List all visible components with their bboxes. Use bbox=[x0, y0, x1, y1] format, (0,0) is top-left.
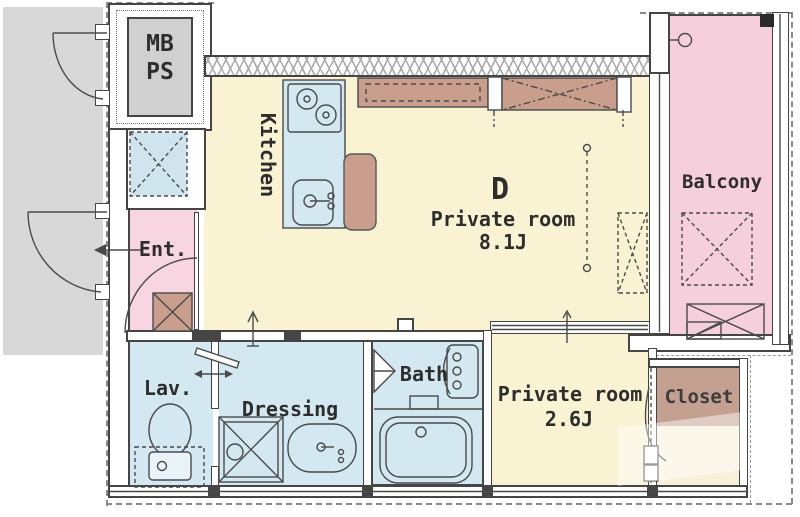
neighbor-door-icon bbox=[28, 33, 107, 292]
label-closet: Closet bbox=[650, 387, 748, 408]
utility-space-icon bbox=[130, 132, 187, 196]
watermark bbox=[618, 412, 742, 486]
shoe-cabinet-icon bbox=[153, 293, 192, 331]
bathtub-icon bbox=[374, 396, 483, 483]
sliding-door-mark bbox=[563, 311, 571, 343]
overhead-cabinet-icon bbox=[358, 77, 631, 127]
floor-plan: MB PS Kitchen D Private room 8.1J Balcon… bbox=[0, 0, 800, 517]
label-mbps: MB PS bbox=[127, 30, 193, 86]
toilet-icon bbox=[135, 404, 204, 487]
fixtures-overlay bbox=[0, 0, 800, 517]
label-kitchen: Kitchen bbox=[255, 105, 279, 205]
label-balcony: Balcony bbox=[672, 172, 772, 193]
label-dressing: Dressing bbox=[215, 398, 365, 420]
label-bedroom-name: Private room bbox=[477, 383, 663, 405]
refrigerator-icon bbox=[344, 154, 376, 230]
balcony-partition-icon bbox=[687, 304, 764, 339]
label-main-room-letter: D bbox=[470, 173, 530, 206]
balcony-faucet-icon bbox=[670, 34, 692, 47]
label-bath: Bath bbox=[374, 363, 474, 385]
kitchen-counter-icon bbox=[283, 80, 345, 228]
lavatory-door-leaf bbox=[194, 348, 239, 378]
label-mbps-line1: MB bbox=[127, 30, 193, 58]
label-main-room-size: 8.1J bbox=[450, 231, 556, 253]
label-bedroom-size: 2.6J bbox=[519, 408, 619, 430]
label-mbps-line2: PS bbox=[127, 58, 193, 86]
label-entrance: Ent. bbox=[126, 238, 200, 260]
washing-machine-pan-icon bbox=[219, 417, 283, 482]
label-main-room-name: Private room bbox=[410, 208, 596, 230]
ac-unit-dashed-icon bbox=[618, 213, 647, 293]
passage-arrow-icon bbox=[247, 312, 259, 346]
balcony-washer-space-icon bbox=[682, 213, 752, 285]
label-lavatory: Lav. bbox=[128, 377, 208, 399]
vanity-sink-icon bbox=[288, 424, 356, 472]
